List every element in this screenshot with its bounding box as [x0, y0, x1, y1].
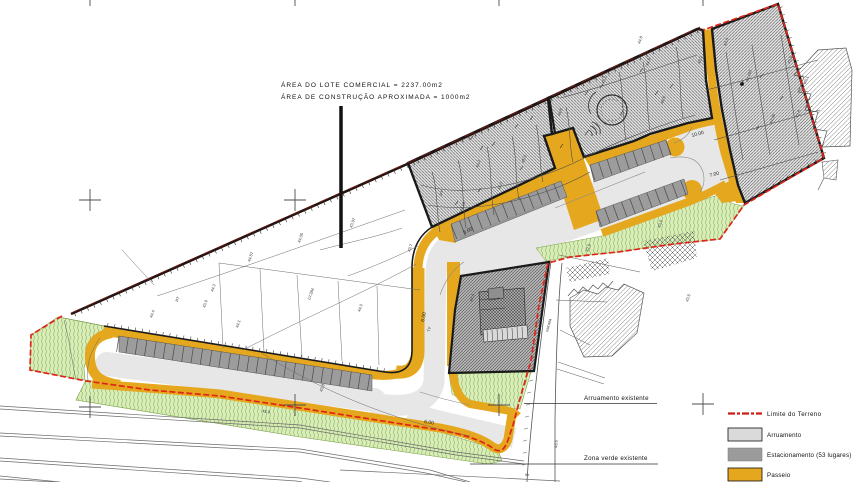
svg-text:Passeio: Passeio — [767, 472, 791, 479]
svg-text:Zona verde existente: Zona verde existente — [584, 455, 648, 462]
svg-text:ÁREA DO LOTE COMERCIAL = 2237.: ÁREA DO LOTE COMERCIAL = 2237.00m2 — [281, 80, 443, 89]
svg-text:ÁREA DE CONSTRUÇÃO APROXIMADA: ÁREA DE CONSTRUÇÃO APROXIMADA = 1000m2 — [281, 92, 471, 101]
svg-text:Limite do Terreno: Limite do Terreno — [767, 411, 822, 418]
svg-text:Estacionamento (53 lugares): Estacionamento (53 lugares) — [767, 452, 852, 459]
svg-text:43.5: 43.5 — [553, 439, 559, 448]
svg-text:ltir: ltir — [525, 472, 530, 477]
svg-text:Arruamento existente: Arruamento existente — [584, 395, 649, 402]
svg-text:Arruamento: Arruamento — [767, 432, 802, 439]
